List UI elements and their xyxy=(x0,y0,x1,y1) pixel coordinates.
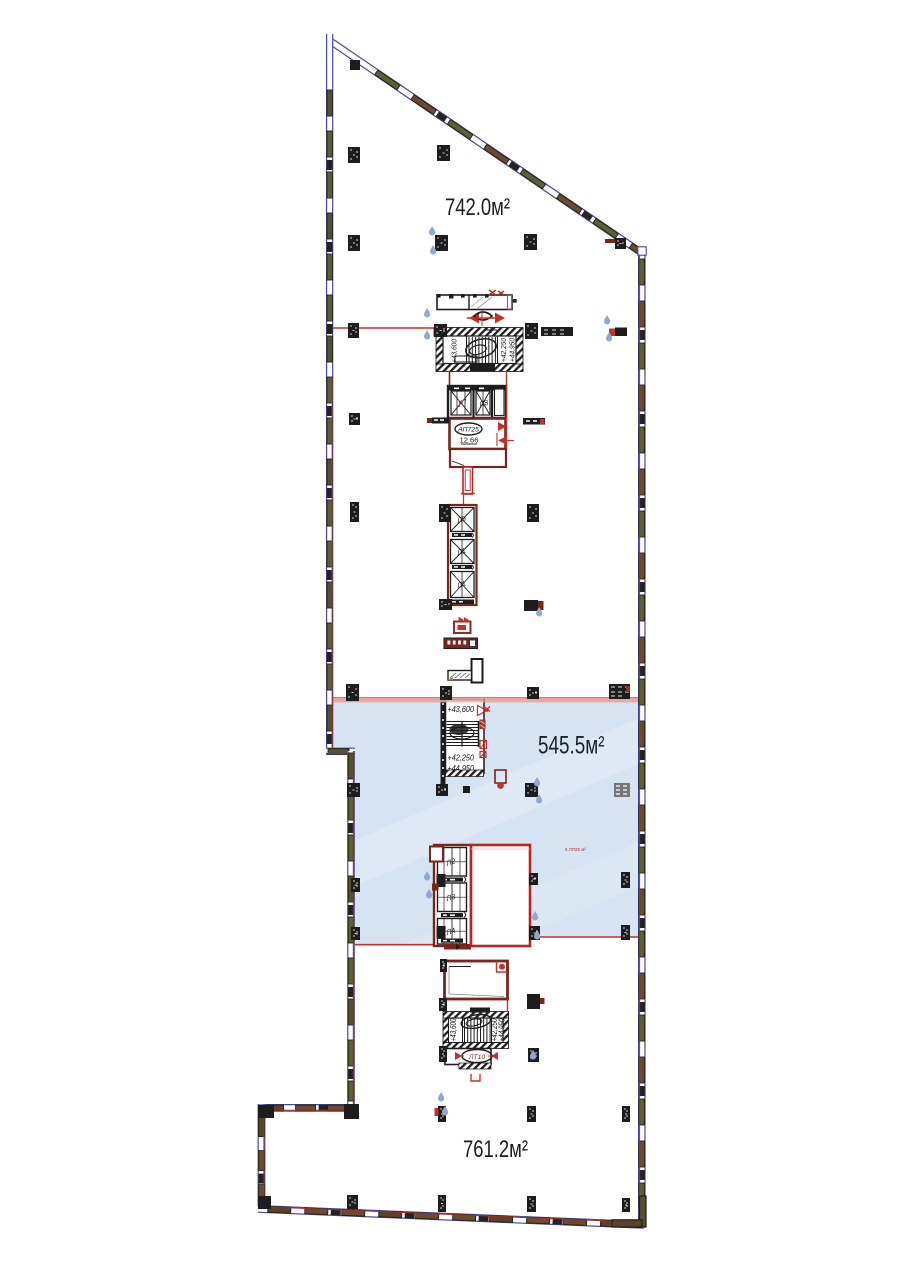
svg-text:+42,250: +42,250 xyxy=(448,754,475,763)
svg-text:+43,600: +43,600 xyxy=(449,1018,458,1041)
svg-text:12.66: 12.66 xyxy=(459,436,478,445)
svg-text:761.2м²: 761.2м² xyxy=(463,1136,528,1163)
svg-text:742.0м²: 742.0м² xyxy=(445,194,510,221)
svg-text:545.5м²: 545.5м² xyxy=(538,732,605,760)
svg-text:+44,950: +44,950 xyxy=(508,337,517,362)
svg-text:ЛТ10: ЛТ10 xyxy=(468,1054,486,1061)
svg-text:+44,950: +44,950 xyxy=(498,1018,507,1041)
svg-text:АП725: АП725 xyxy=(457,427,479,434)
svg-text:8 ЛП25 м²: 8 ЛП25 м² xyxy=(565,847,586,852)
svg-text:+43,600: +43,600 xyxy=(448,705,475,714)
svg-text:+43,600: +43,600 xyxy=(450,338,459,363)
